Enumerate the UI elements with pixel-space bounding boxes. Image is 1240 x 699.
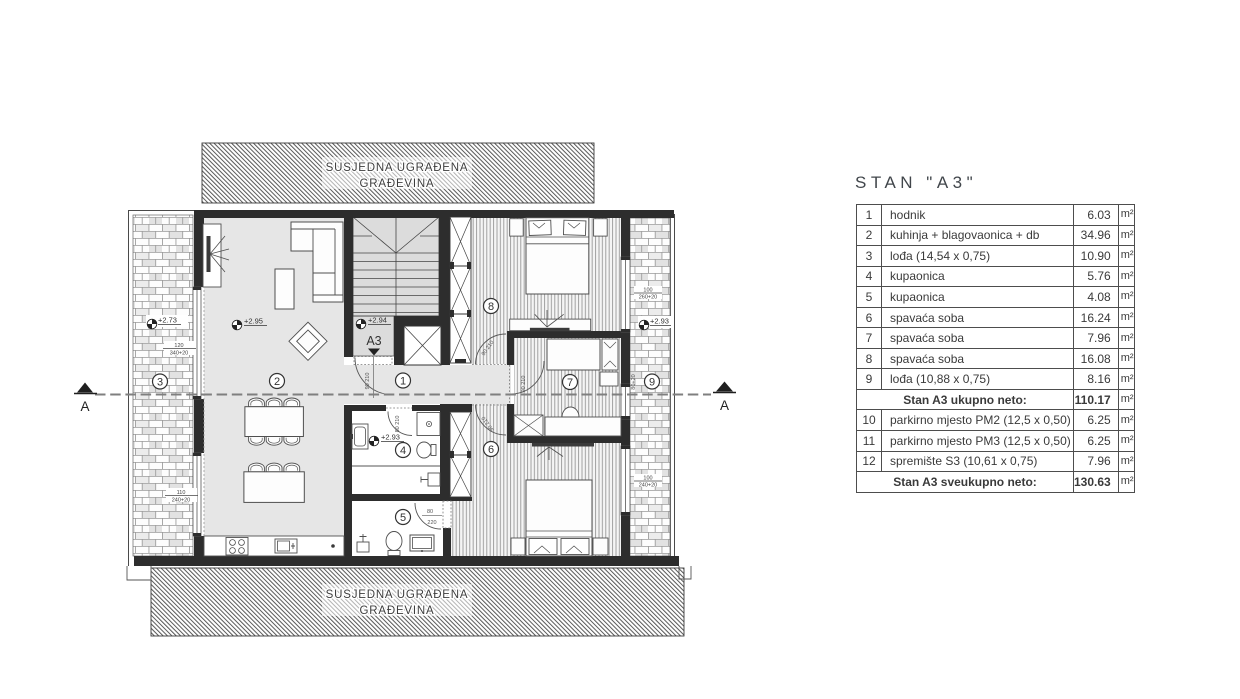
svg-text:100: 100	[643, 288, 652, 294]
svg-text:GRAĐEVINA: GRAĐEVINA	[360, 178, 435, 190]
svg-text:9: 9	[649, 377, 655, 389]
svg-text:SUSJEDNA UGRAĐENA: SUSJEDNA UGRAĐENA	[326, 589, 469, 601]
svg-text:A: A	[720, 398, 729, 413]
svg-text:+2.94: +2.94	[368, 316, 387, 325]
svg-text:340+20: 340+20	[170, 351, 189, 357]
svg-text:2: 2	[274, 376, 280, 388]
svg-text:90 210: 90 210	[521, 376, 527, 393]
svg-text:A3: A3	[366, 334, 381, 348]
svg-text:SUSJEDNA UGRAĐENA: SUSJEDNA UGRAĐENA	[326, 162, 469, 174]
svg-text:80+20: 80+20	[631, 374, 637, 389]
svg-text:GRAĐEVINA: GRAĐEVINA	[360, 605, 435, 617]
svg-text:110: 110	[177, 490, 186, 496]
svg-text:1: 1	[400, 376, 406, 388]
svg-text:80 210: 80 210	[395, 416, 401, 433]
svg-text:+2.95: +2.95	[244, 317, 263, 326]
svg-text:4: 4	[400, 445, 406, 457]
svg-text:80: 80	[427, 509, 433, 515]
svg-text:7: 7	[567, 377, 573, 389]
svg-text:3: 3	[157, 377, 163, 389]
svg-text:+2.93: +2.93	[650, 317, 669, 326]
svg-text:120: 120	[174, 343, 183, 349]
svg-text:100: 100	[643, 476, 652, 482]
svg-text:6: 6	[488, 444, 494, 456]
svg-text:220: 220	[427, 520, 436, 526]
svg-text:5: 5	[400, 512, 406, 524]
svg-text:8: 8	[488, 301, 494, 313]
svg-text:+2.73: +2.73	[158, 316, 177, 325]
svg-text:260+20: 260+20	[639, 295, 658, 301]
svg-text:240+20: 240+20	[639, 483, 658, 489]
svg-text:240+20: 240+20	[172, 498, 191, 504]
svg-text:+2.93: +2.93	[381, 433, 400, 442]
svg-text:A: A	[80, 399, 89, 414]
svg-text:90 210: 90 210	[365, 373, 371, 390]
